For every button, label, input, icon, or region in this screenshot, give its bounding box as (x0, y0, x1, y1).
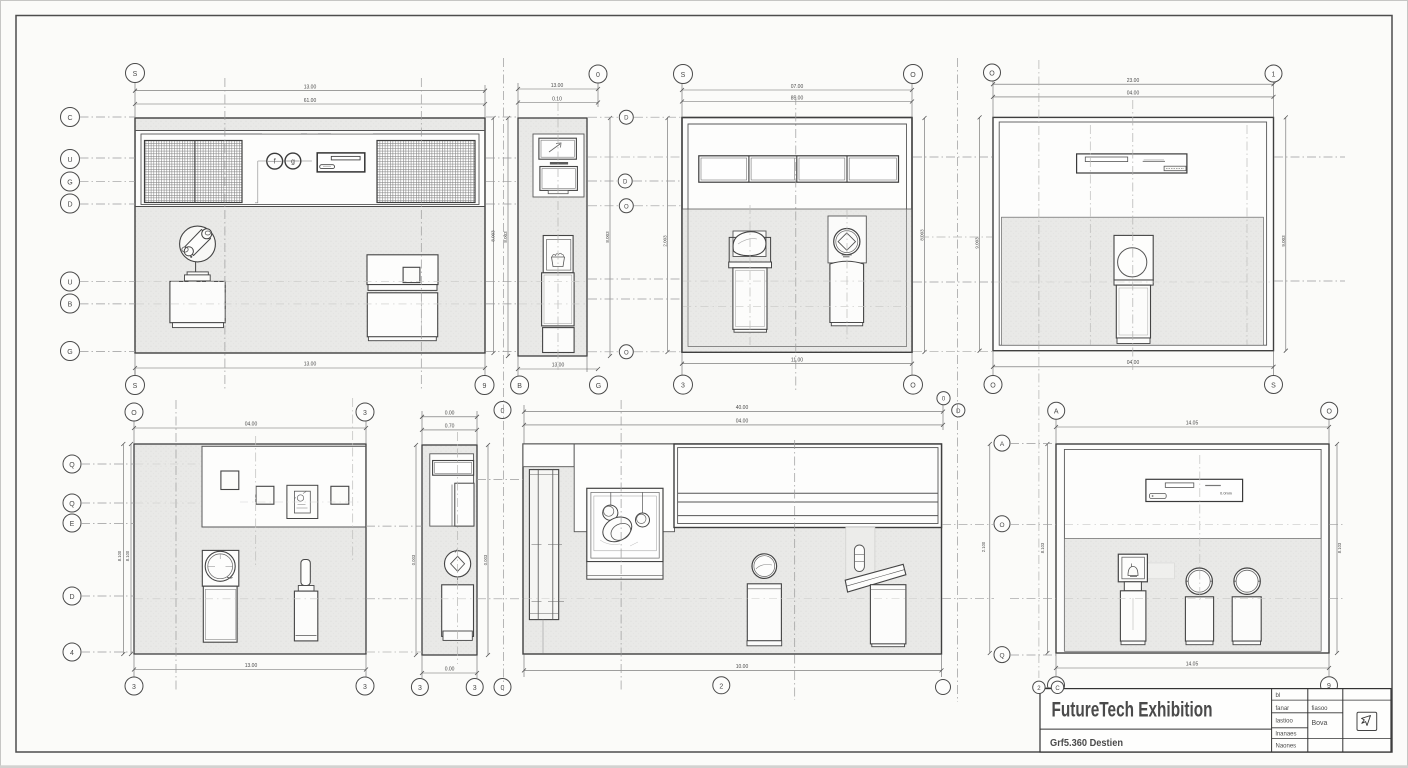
svg-text:2.100: 2.100 (981, 541, 986, 552)
svg-text:S: S (133, 71, 138, 78)
svg-text:14.05: 14.05 (1186, 662, 1199, 668)
svg-text:04.00: 04.00 (1127, 91, 1140, 97)
svg-text:Bova: Bova (1312, 720, 1328, 727)
svg-text:13.00: 13.00 (304, 85, 317, 91)
svg-text:0: 0 (596, 72, 600, 79)
svg-text:C: C (1055, 686, 1060, 692)
svg-text:13.00: 13.00 (245, 663, 258, 669)
svg-text:O: O (910, 72, 916, 79)
svg-text:3: 3 (418, 685, 422, 692)
svg-text:f: f (274, 159, 276, 166)
svg-text:E: E (70, 521, 75, 528)
svg-text:D: D (623, 180, 628, 186)
svg-text:fanar: fanar (1276, 706, 1290, 712)
svg-text:0.0min: 0.0min (1220, 491, 1232, 496)
svg-text:9.003: 9.003 (1281, 235, 1286, 247)
svg-text:2.003: 2.003 (663, 235, 668, 247)
svg-text:61.00: 61.00 (304, 98, 317, 104)
svg-text:Q: Q (999, 653, 1004, 660)
svg-text:O: O (990, 383, 996, 390)
svg-text:G: G (67, 180, 72, 187)
svg-text:O: O (999, 522, 1004, 529)
svg-text:8.003: 8.003 (605, 231, 610, 243)
svg-text:G: G (596, 383, 601, 390)
svg-text:O: O (1326, 409, 1332, 416)
svg-text:04.00: 04.00 (245, 422, 258, 428)
svg-text:D: D (624, 116, 629, 122)
svg-text:0.70: 0.70 (445, 424, 455, 430)
svg-text:U: U (67, 157, 72, 164)
svg-text:O: O (131, 410, 137, 417)
svg-text:1: 1 (1272, 72, 1276, 79)
svg-text:13.00: 13.00 (304, 362, 317, 368)
svg-text:0.00: 0.00 (445, 411, 455, 417)
svg-text:B: B (68, 302, 73, 309)
svg-text:0.10: 0.10 (552, 97, 562, 103)
svg-text:O: O (624, 204, 629, 210)
svg-text:S: S (681, 72, 686, 79)
svg-text:D: D (956, 409, 961, 415)
svg-text:3: 3 (363, 410, 367, 417)
svg-text:bl: bl (1276, 693, 1281, 699)
svg-text:14.05: 14.05 (1186, 421, 1199, 427)
svg-text:Grf5.360 Destien: Grf5.360 Destien (1050, 737, 1123, 749)
svg-text:O: O (910, 383, 916, 390)
svg-text:FutureTech Exhibition: FutureTech Exhibition (1052, 698, 1213, 722)
svg-text:A: A (1000, 441, 1005, 448)
svg-text:Q: Q (69, 462, 75, 469)
svg-text:G: G (67, 349, 72, 356)
svg-text:2: 2 (719, 683, 723, 690)
svg-text:3: 3 (363, 684, 367, 691)
svg-text:D: D (69, 594, 74, 601)
svg-text:U: U (67, 280, 72, 287)
svg-text:0.003: 0.003 (411, 554, 416, 565)
svg-text:0.00: 0.00 (445, 667, 455, 673)
svg-text:S: S (1271, 383, 1276, 390)
svg-text:D: D (67, 202, 72, 209)
svg-text:8.103: 8.103 (1337, 542, 1342, 553)
svg-text:B: B (517, 383, 522, 390)
svg-text:lastioo: lastioo (1276, 719, 1294, 725)
svg-text:O: O (624, 350, 629, 356)
svg-text:S: S (133, 383, 138, 390)
svg-text:13.00: 13.00 (551, 83, 564, 89)
svg-text:g: g (291, 159, 295, 166)
svg-text:9: 9 (483, 383, 487, 390)
svg-text:8.100: 8.100 (125, 550, 130, 561)
svg-text:8.100: 8.100 (117, 550, 122, 561)
svg-text:23.00: 23.00 (1127, 78, 1140, 84)
svg-text:3: 3 (132, 684, 136, 691)
svg-text:11.00: 11.00 (791, 357, 803, 363)
svg-text:Naones: Naones (1276, 744, 1297, 750)
svg-text:4: 4 (70, 650, 74, 657)
svg-text:O: O (989, 71, 995, 78)
svg-text:40.00: 40.00 (736, 405, 749, 411)
svg-text:8.103: 8.103 (1040, 542, 1045, 553)
svg-text:04.00: 04.00 (736, 418, 749, 424)
svg-text:0.003: 0.003 (483, 554, 488, 565)
svg-text:8.003: 8.003 (920, 229, 925, 241)
svg-text:8.003: 8.003 (491, 230, 496, 242)
svg-text:10.00: 10.00 (736, 664, 749, 670)
svg-text:C: C (67, 115, 72, 122)
svg-text:9.003: 9.003 (975, 237, 980, 249)
svg-text:lnanaes: lnanaes (1276, 731, 1297, 737)
svg-text:fiasoo: fiasoo (1312, 706, 1329, 712)
svg-text:3: 3 (473, 685, 477, 692)
svg-text:3: 3 (681, 383, 685, 390)
svg-text:85.00: 85.00 (791, 95, 804, 101)
svg-text:07.00: 07.00 (791, 84, 804, 90)
svg-text:A: A (1054, 409, 1059, 416)
svg-text:Q: Q (69, 501, 75, 508)
